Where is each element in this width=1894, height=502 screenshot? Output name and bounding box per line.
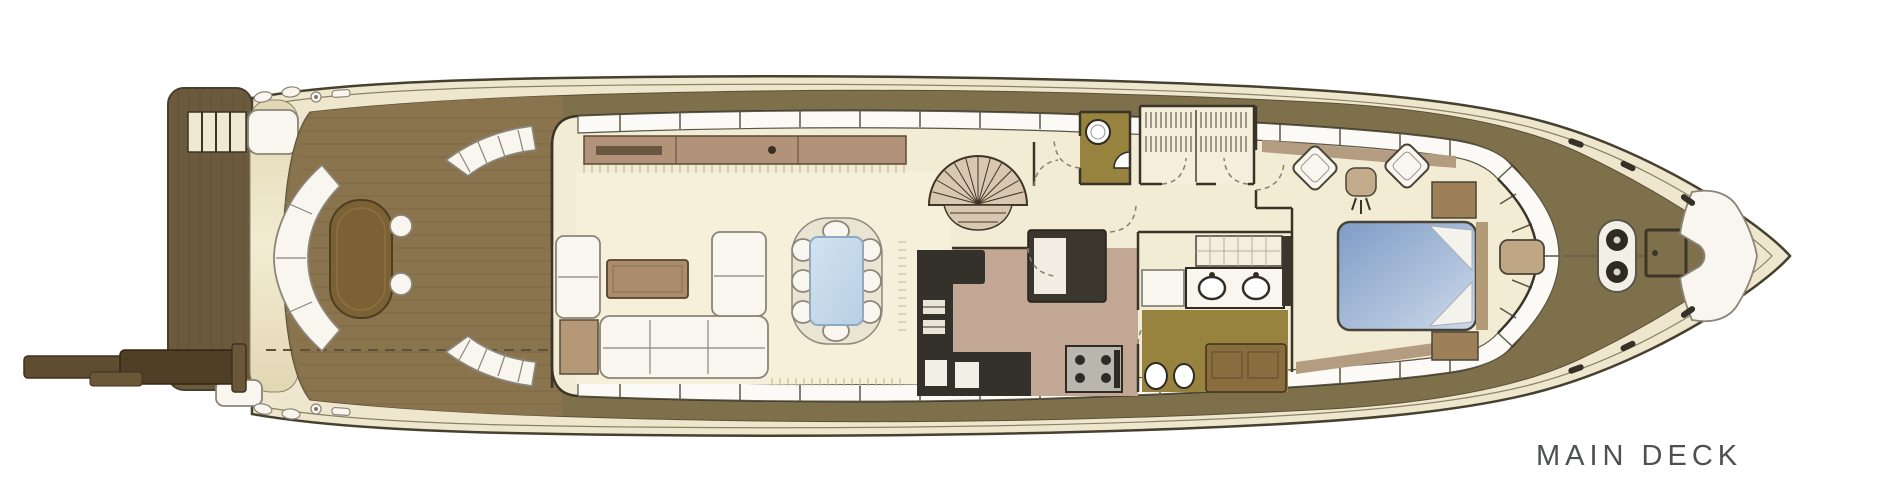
forward-vanity xyxy=(1500,240,1544,274)
sofa-chaise-right xyxy=(712,232,766,316)
bidet xyxy=(1174,364,1194,388)
tv-wall xyxy=(1282,236,1292,306)
nightstand xyxy=(1432,332,1478,360)
sofa-bench xyxy=(600,316,768,378)
transom-steps xyxy=(188,112,246,152)
sideboard xyxy=(584,136,906,164)
main-deck-plan xyxy=(0,0,1894,502)
cockpit-table xyxy=(330,200,392,318)
galley-sink xyxy=(925,360,947,386)
bathroom-dresser xyxy=(1206,344,1286,392)
vanity-double-sink xyxy=(1186,268,1284,308)
nightstand xyxy=(1432,182,1476,218)
sofa-side-table xyxy=(560,320,598,374)
drawer-unit xyxy=(1196,236,1282,266)
double-bed xyxy=(1338,222,1476,330)
yacht-main-deck-screenshot: MAIN DECK xyxy=(0,0,1894,502)
bathroom-cabinet xyxy=(1142,270,1184,306)
pantry-closet xyxy=(1140,106,1254,184)
galley-island xyxy=(1028,230,1106,302)
day-head-toilet xyxy=(1086,120,1110,144)
day-head xyxy=(1080,112,1130,184)
dining-table xyxy=(810,237,863,325)
galley xyxy=(917,230,1138,396)
coffee-table xyxy=(607,260,688,298)
headboard xyxy=(1476,222,1488,330)
cockpit-stool xyxy=(390,215,412,237)
carpet-fringe xyxy=(584,164,904,173)
toilet xyxy=(1145,363,1167,389)
side-table xyxy=(1346,168,1376,196)
anchor-windlass xyxy=(1598,220,1636,292)
deck-name-label: MAIN DECK xyxy=(1536,440,1836,473)
transom-landing xyxy=(248,110,298,154)
dining-area xyxy=(792,218,882,344)
galley-sink xyxy=(955,362,979,388)
cockpit-stool xyxy=(390,273,412,295)
stove xyxy=(1066,346,1122,392)
